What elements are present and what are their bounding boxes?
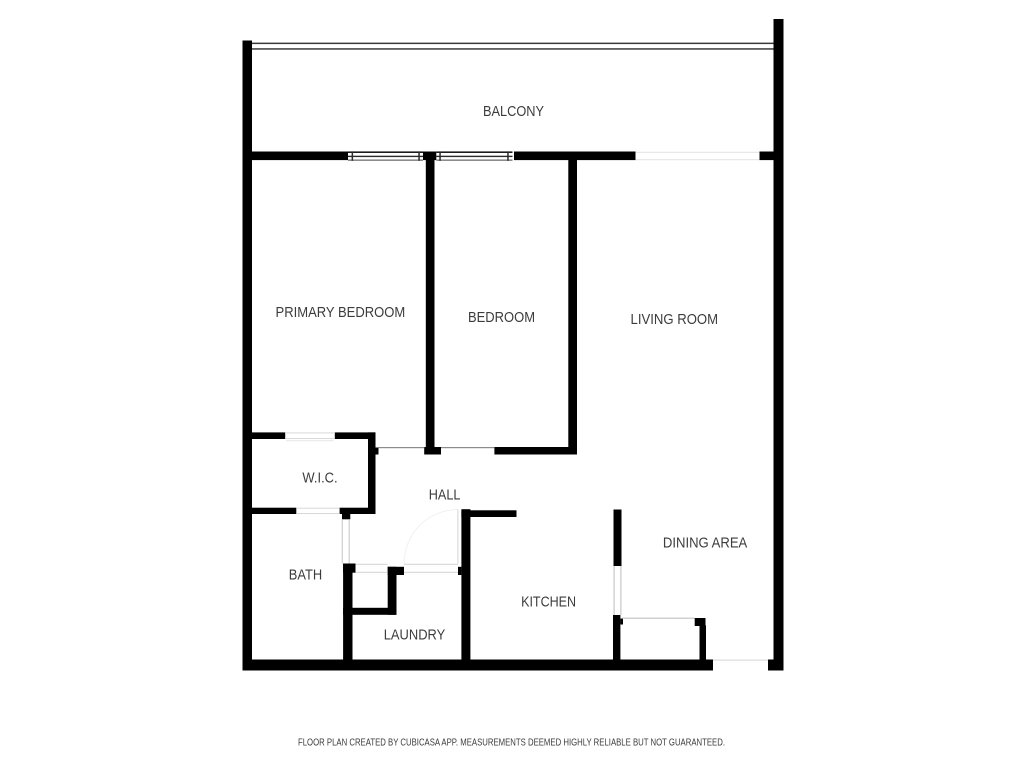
svg-text:W.I.C.: W.I.C.	[302, 470, 337, 487]
svg-text:PRIMARY BEDROOM: PRIMARY BEDROOM	[276, 304, 406, 321]
svg-text:BALCONY: BALCONY	[483, 103, 544, 120]
svg-text:KITCHEN: KITCHEN	[521, 593, 576, 610]
svg-text:FLOOR PLAN CREATED BY CUBICASA: FLOOR PLAN CREATED BY CUBICASA APP. MEAS…	[298, 738, 725, 749]
svg-text:LIVING ROOM: LIVING ROOM	[631, 311, 719, 328]
svg-text:DINING AREA: DINING AREA	[663, 535, 747, 552]
svg-text:BEDROOM: BEDROOM	[468, 309, 535, 326]
svg-text:LAUNDRY: LAUNDRY	[384, 626, 446, 643]
svg-text:HALL: HALL	[429, 486, 461, 503]
svg-text:BATH: BATH	[289, 567, 322, 584]
